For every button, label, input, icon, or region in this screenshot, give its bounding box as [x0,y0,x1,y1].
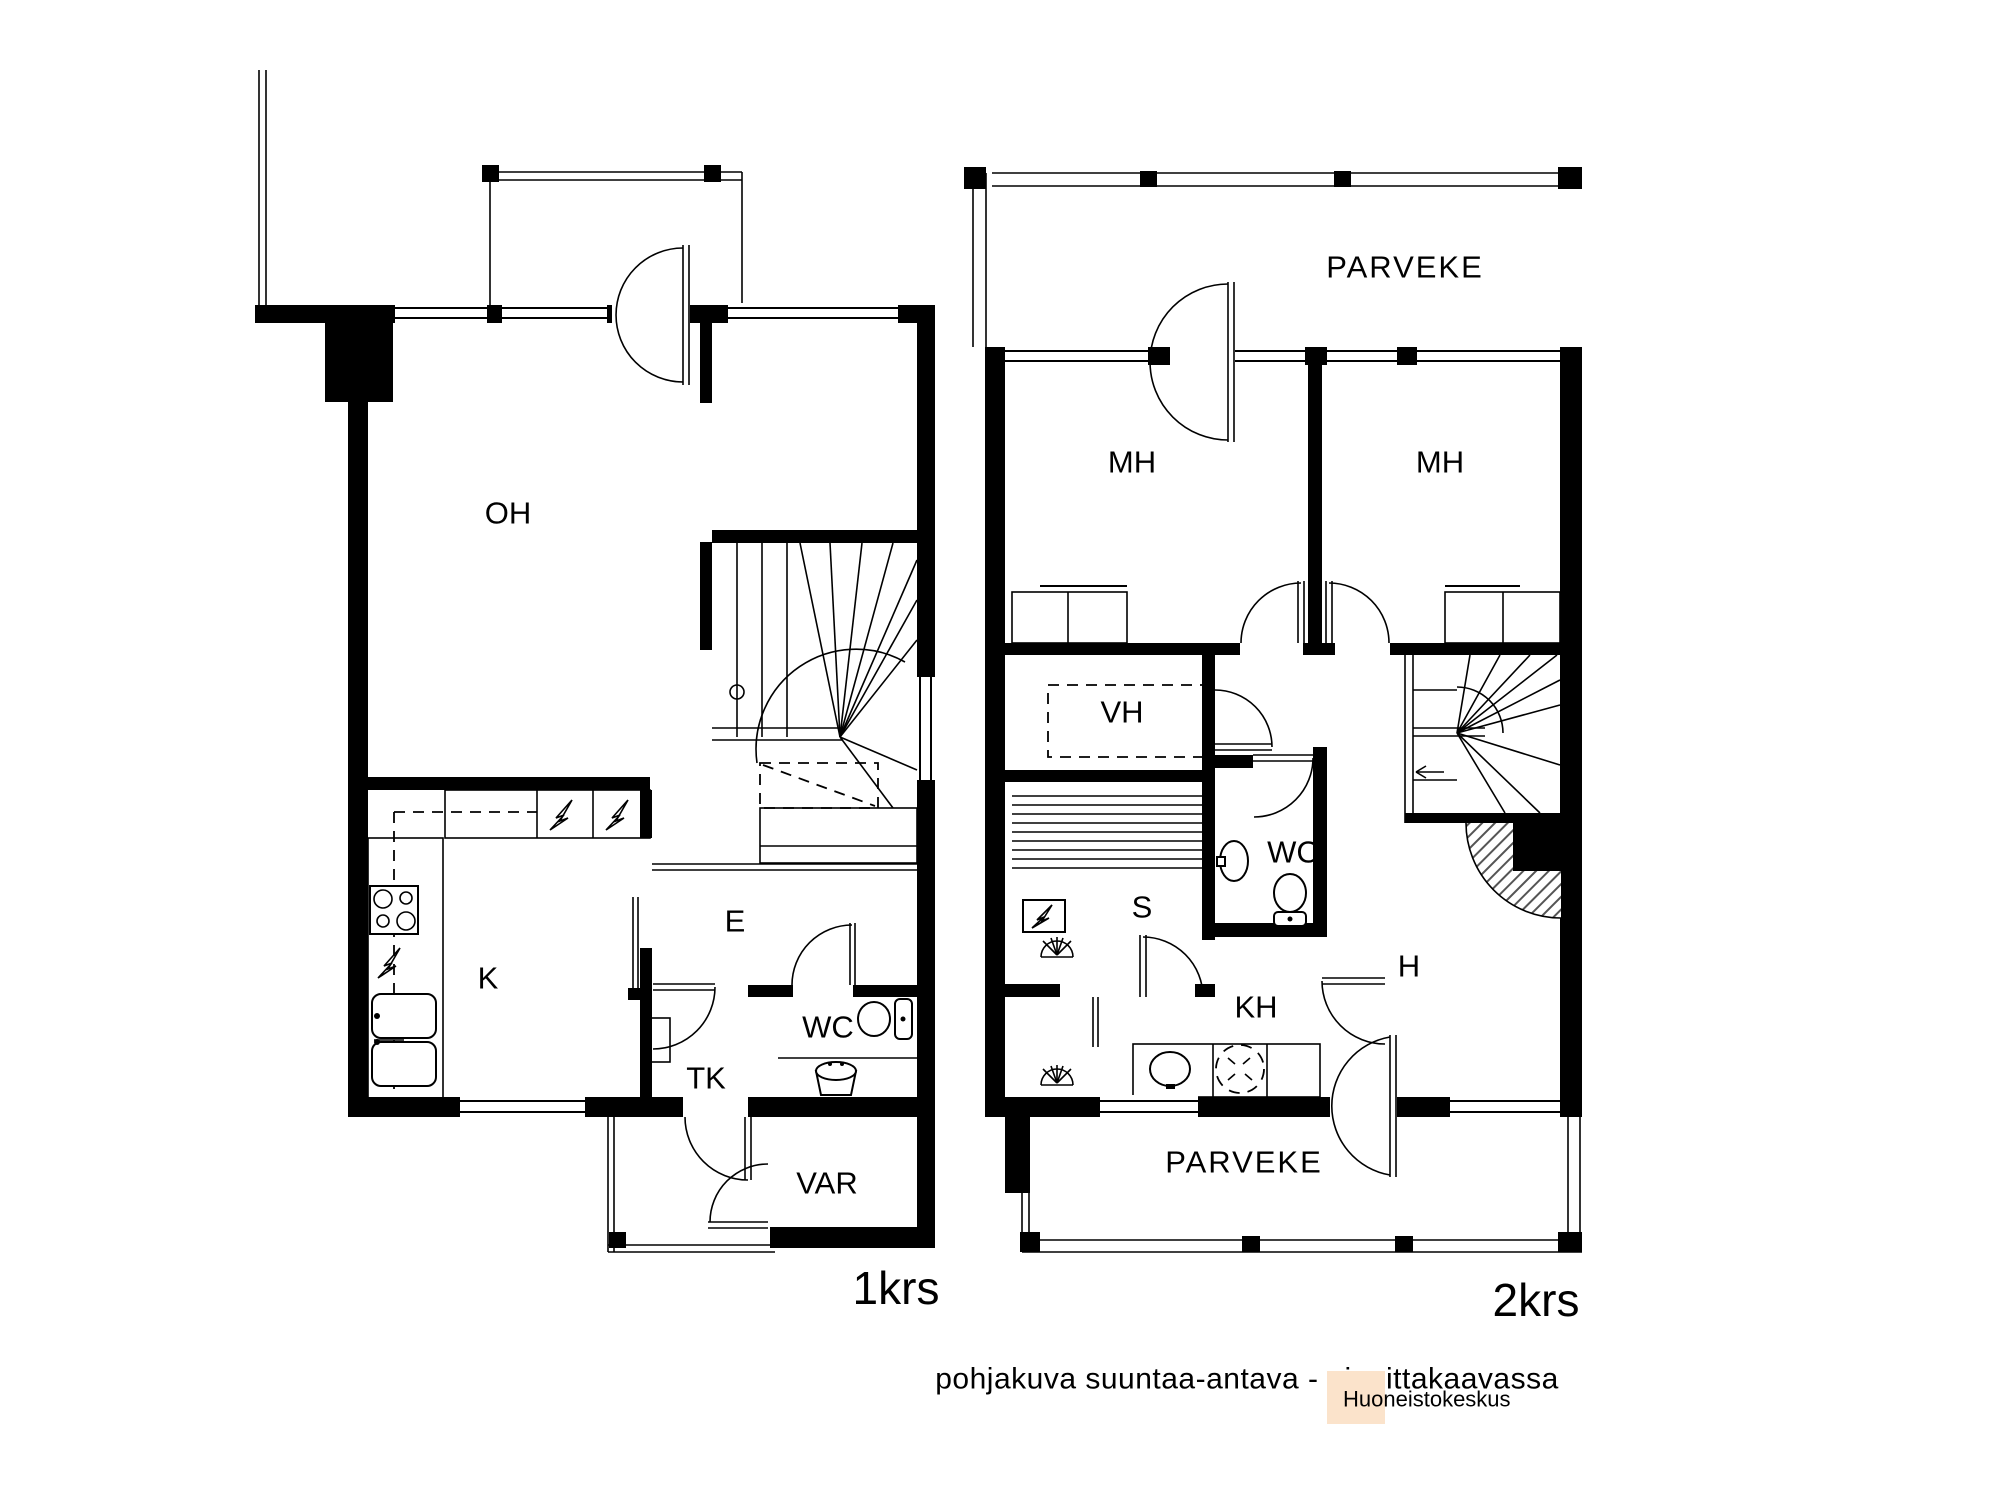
floor1-bottom-window [460,1101,585,1112]
floor1-stairs [652,543,917,870]
room-label-kh: KH [1234,990,1277,1025]
floor2-top-windows [1005,344,1560,368]
stair-void-hatch [1466,823,1561,918]
room-label-e: E [725,904,746,939]
floor2-balcony-top [964,167,1582,347]
basin-icon [816,1062,856,1095]
floor2-stairs [1405,655,1560,823]
floor1-plan: OH K E TK WC VAR 1krs [255,70,939,1314]
toilet-icon-wc2 [1274,874,1306,926]
floor1-walls [255,305,935,1248]
floor2-wc-door [1253,755,1313,817]
room-label-oh: OH [485,496,532,531]
room-label-wc1: WC [802,1010,854,1045]
room-label-s: S [1132,890,1153,925]
floor2-balcony-door-bottom [1332,1035,1397,1177]
floor2-plan: PARVEKE MH MH VH S WC KH H PARVEKE 2krs [964,167,1582,1326]
room-label-vh: VH [1100,695,1143,730]
toilet-icon [858,999,912,1039]
var-entry-door [708,1164,768,1228]
vh-door [1215,690,1272,750]
floorplan-svg: OH K E TK WC VAR 1krs [0,0,2000,1500]
brand-logo: Huoneistokeskus [1343,1387,1511,1412]
floor1-interior-walls [368,322,917,1112]
footer: pohjakuva suuntaa-antava - ei mittakaava… [935,1363,1559,1425]
mh-right-door [1326,581,1389,643]
floor1-porch [608,1117,775,1252]
tk-cabinet [650,1018,670,1062]
sink-icon [372,994,436,1086]
stove-icon [370,886,418,934]
room-label-mh-right: MH [1416,445,1464,480]
fence-line [259,70,266,306]
shower-icon-kh [1041,1065,1073,1085]
floor1-terrace [482,165,742,305]
floor2-balcony-bottom [1005,1117,1582,1252]
floor2-walls [985,347,1582,1117]
floor1-right-window [915,677,937,780]
sauna-heater-icon [1023,900,1065,932]
room-label-var: VAR [796,1166,857,1201]
shower-icon [1041,937,1073,957]
floor1-wc-door [792,923,855,985]
floor2-label: 2krs [1493,1274,1580,1326]
sauna-benches [1012,796,1202,868]
balcony-top-label: PARVEKE [1326,250,1484,285]
basin-icon-wc2 [1217,841,1248,881]
room-label-tk: TK [686,1061,726,1096]
wardrobe-left [1012,586,1127,643]
floorplan-canvas: OH K E TK WC VAR 1krs [0,0,2000,1500]
kh-h-door [1322,978,1385,1044]
room-label-wc2: WC [1267,835,1319,870]
basin-icon-kh [1150,1052,1190,1089]
room-label-k: K [478,961,499,996]
sauna-door [1140,935,1203,997]
floor1-top-windows [395,302,898,324]
floor1-label: 1krs [853,1262,940,1314]
tk-door [653,984,715,1049]
wardrobe-right [1445,586,1560,643]
mh-left-door [1241,581,1304,643]
room-label-h: H [1398,949,1420,984]
balcony-bottom-label: PARVEKE [1165,1145,1323,1180]
room-label-mh-left: MH [1108,445,1156,480]
washing-machine-icon [1216,1045,1264,1093]
